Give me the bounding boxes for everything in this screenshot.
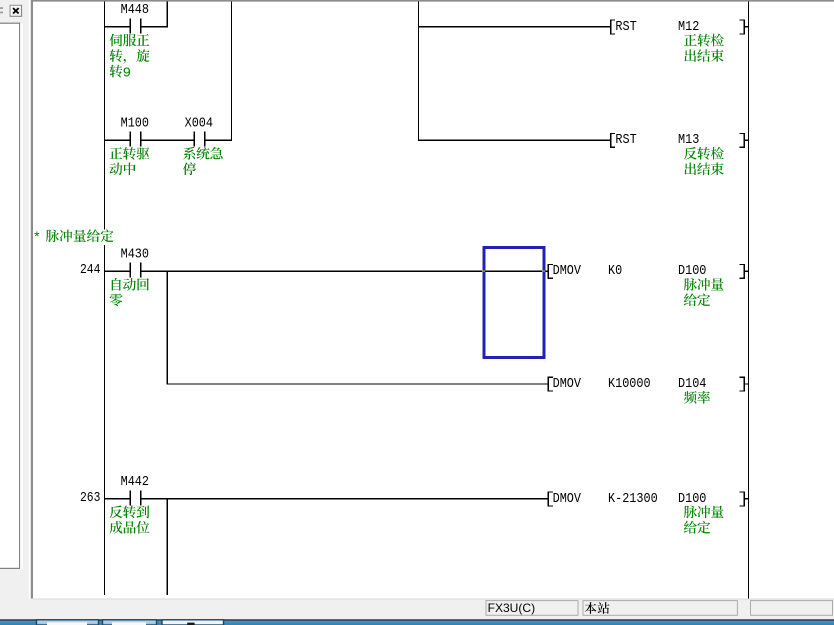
svg-text:K0: K0 — [608, 263, 622, 279]
svg-text:M12: M12 — [678, 19, 699, 35]
svg-text:RST: RST — [615, 19, 636, 35]
svg-text:X004: X004 — [185, 115, 213, 131]
svg-text:DMOV: DMOV — [553, 376, 582, 392]
svg-text:263: 263 — [80, 490, 100, 506]
svg-text:K10000: K10000 — [608, 376, 651, 392]
svg-text:DMOV: DMOV — [553, 263, 582, 279]
svg-text:M448: M448 — [121, 2, 149, 18]
svg-text:D104: D104 — [678, 376, 706, 392]
svg-text:M100: M100 — [121, 115, 149, 131]
svg-text:9: 9 — [123, 65, 131, 81]
svg-text:RST: RST — [615, 132, 636, 148]
svg-text:M13: M13 — [678, 132, 699, 148]
svg-text:FX3U(C): FX3U(C) — [488, 601, 535, 615]
svg-text:*: * — [33, 231, 41, 247]
svg-text:M442: M442 — [121, 474, 149, 490]
svg-text:K-21300: K-21300 — [608, 491, 658, 507]
svg-text:D100: D100 — [678, 263, 706, 279]
svg-text:D100: D100 — [678, 491, 706, 507]
svg-text:244: 244 — [80, 262, 100, 278]
svg-text:M430: M430 — [121, 246, 149, 262]
svg-text:DMOV: DMOV — [553, 491, 582, 507]
